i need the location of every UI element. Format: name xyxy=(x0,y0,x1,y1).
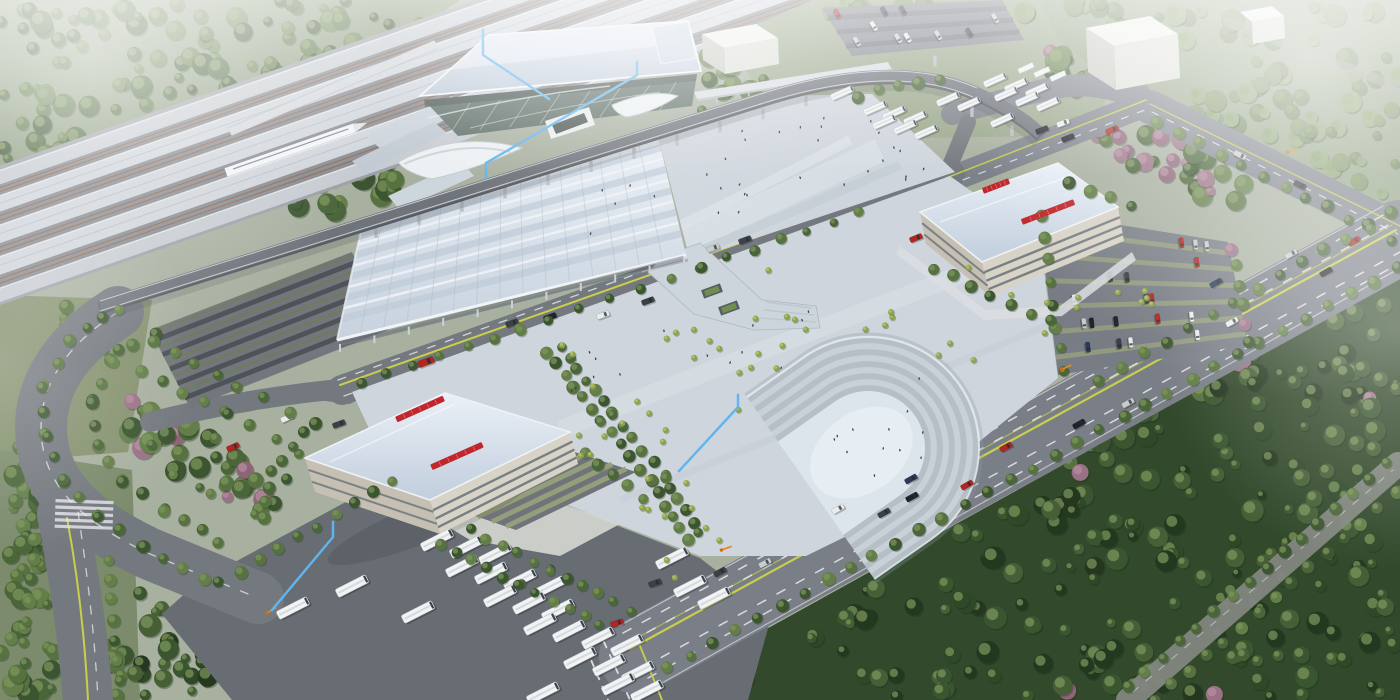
forest-tree xyxy=(1248,584,1264,601)
blossom-tree xyxy=(1224,243,1238,258)
street-tree xyxy=(222,408,234,420)
forest-tree xyxy=(260,63,280,84)
person xyxy=(906,410,908,413)
forest-tree xyxy=(842,10,859,27)
blossom-tree xyxy=(1152,129,1171,148)
person xyxy=(817,139,819,142)
forest-tree xyxy=(387,135,409,157)
person xyxy=(893,146,895,149)
car xyxy=(1177,237,1184,249)
bus xyxy=(401,600,438,626)
forest-tree xyxy=(1375,688,1386,699)
forest-tree xyxy=(1252,420,1273,441)
street-tree xyxy=(1138,347,1150,360)
forest-tree xyxy=(1314,580,1327,594)
forest-tree xyxy=(102,320,125,344)
street-tree xyxy=(661,470,672,481)
forest-tree xyxy=(58,56,72,70)
red-signboard xyxy=(1021,199,1075,225)
forest-tree xyxy=(314,151,335,172)
blossom-tree xyxy=(1048,49,1068,69)
street-tree xyxy=(598,395,610,408)
street-tree xyxy=(464,342,474,352)
forest-tree xyxy=(320,10,342,33)
street-tree xyxy=(1354,518,1368,532)
forest-tree xyxy=(159,640,177,658)
forest-tree xyxy=(728,47,741,60)
forest-tree xyxy=(17,683,39,700)
pillar xyxy=(374,227,377,238)
forest-tree xyxy=(34,485,50,501)
street-tree xyxy=(189,358,200,369)
bus xyxy=(630,679,667,700)
forest-tree xyxy=(1091,535,1103,548)
street-tree xyxy=(616,439,627,451)
street-tree xyxy=(626,607,637,618)
forest-tree xyxy=(1293,469,1312,488)
forest-tree xyxy=(19,82,34,97)
forest-tree xyxy=(67,29,82,44)
street-tree xyxy=(562,573,575,586)
forest-tree xyxy=(741,102,758,120)
bus xyxy=(474,561,511,587)
forest-tree xyxy=(1061,83,1071,94)
forest-tree xyxy=(1167,3,1190,26)
forest-tree xyxy=(264,56,278,71)
forest-tree xyxy=(114,0,137,23)
forest-tree xyxy=(28,491,52,515)
toll-gate xyxy=(264,606,277,615)
street-tree xyxy=(659,501,672,514)
forest-tree xyxy=(1195,569,1214,588)
forest-tree xyxy=(116,670,129,683)
forest-tree xyxy=(1033,654,1054,675)
forest-tree xyxy=(1359,632,1382,655)
forest-tree xyxy=(1264,67,1283,86)
car xyxy=(1284,248,1300,261)
forest-tree xyxy=(208,58,231,81)
forest-tree xyxy=(758,74,770,86)
street-tree xyxy=(1232,348,1244,361)
forest-tree xyxy=(1362,110,1380,129)
car xyxy=(1142,293,1149,305)
forest-tree xyxy=(226,7,248,29)
person xyxy=(874,474,876,477)
car xyxy=(1147,293,1154,305)
person xyxy=(852,428,854,431)
forest-tree xyxy=(1079,398,1099,418)
forest-tree xyxy=(1117,388,1129,401)
plaza-tree xyxy=(971,357,978,364)
forest-tree xyxy=(1186,161,1201,176)
forest-tree xyxy=(418,155,434,171)
forest-tree xyxy=(247,61,259,73)
forest-tree xyxy=(844,604,866,626)
street-tree xyxy=(198,573,212,587)
car xyxy=(1193,330,1200,342)
forest-tree xyxy=(203,662,221,681)
street-tree xyxy=(1149,695,1162,700)
street-tree xyxy=(258,392,270,404)
southwest-road xyxy=(62,514,88,700)
ground-base xyxy=(0,0,1400,700)
forest-tree xyxy=(1072,485,1094,508)
street-tree xyxy=(276,455,289,468)
street-tree xyxy=(853,206,864,218)
street-tree xyxy=(912,523,926,538)
forest-tree xyxy=(160,632,179,652)
forest-tree xyxy=(197,666,219,688)
forest-tree xyxy=(174,73,185,84)
street-tree xyxy=(1301,560,1315,574)
street-tree xyxy=(1035,210,1049,224)
forest-tree xyxy=(1390,159,1400,170)
forest-tree xyxy=(1025,407,1046,428)
pillar xyxy=(589,161,592,172)
person xyxy=(752,324,754,327)
street-tree xyxy=(28,533,42,548)
street-tree xyxy=(137,540,151,554)
person xyxy=(922,431,924,434)
forest-tree xyxy=(38,84,55,101)
forest-tree xyxy=(170,0,186,13)
forest-tree xyxy=(118,78,133,93)
forest-tree xyxy=(146,440,157,452)
bus-shelter xyxy=(1050,70,1067,81)
forest-tree xyxy=(33,16,46,30)
car xyxy=(960,479,976,492)
street-tree xyxy=(309,417,323,431)
forest-tree xyxy=(1108,16,1129,37)
forest-tree xyxy=(350,167,374,191)
plaza-tree xyxy=(1044,300,1051,307)
forest-tree xyxy=(284,0,300,12)
forest-tree xyxy=(1079,657,1096,674)
person xyxy=(899,449,901,452)
short-connector xyxy=(944,122,968,180)
street-tree xyxy=(176,387,189,400)
street-tree xyxy=(594,620,605,631)
street-tree xyxy=(695,264,705,274)
blossom-tree xyxy=(1071,410,1093,432)
person xyxy=(718,211,719,214)
forest-tree xyxy=(1063,455,1079,471)
forest-tree xyxy=(178,420,200,442)
street-tree xyxy=(231,381,243,393)
person xyxy=(629,184,631,187)
street-tree xyxy=(265,466,277,478)
street-tree xyxy=(244,419,257,432)
forest-tree xyxy=(1022,690,1035,700)
street-tree xyxy=(298,426,311,439)
street-tree xyxy=(158,505,172,519)
bus xyxy=(936,91,962,109)
forest-tree xyxy=(1376,188,1389,201)
street-tree xyxy=(498,540,510,552)
forest-tree xyxy=(1362,532,1383,553)
street-tree xyxy=(1045,315,1057,327)
forest-tree xyxy=(1390,382,1400,397)
forest-tree xyxy=(76,627,95,646)
forest-tree xyxy=(1377,589,1389,601)
forest-tree xyxy=(1245,29,1261,45)
forest-tree xyxy=(1087,427,1105,446)
street-tree xyxy=(1228,590,1240,602)
street-tree xyxy=(682,534,696,548)
forest-tree xyxy=(98,28,111,41)
annotation-callout-line xyxy=(483,30,549,99)
forest-tree xyxy=(1054,65,1072,83)
forest-tree xyxy=(1224,112,1240,129)
colonnade-shadow xyxy=(340,258,684,345)
pillar xyxy=(503,187,506,198)
forest-tree xyxy=(1364,1,1386,23)
forest-tree xyxy=(317,193,338,215)
forest-tree xyxy=(232,480,252,500)
person xyxy=(741,130,743,133)
forest-tree xyxy=(1336,364,1355,383)
street-tree xyxy=(1252,283,1266,297)
street-tree xyxy=(97,312,110,325)
plaza-tree xyxy=(672,575,679,582)
forest-tree xyxy=(849,0,871,21)
forest-tree xyxy=(16,674,33,691)
forest-tree xyxy=(26,442,50,466)
forest-tree xyxy=(268,60,281,74)
street-tree xyxy=(636,284,648,296)
forest-tree xyxy=(366,140,385,160)
street-tree xyxy=(1392,261,1400,274)
street-tree xyxy=(566,381,581,396)
person xyxy=(614,202,615,205)
forest-tree xyxy=(139,432,162,456)
bus xyxy=(673,574,710,600)
plaza-tree xyxy=(792,317,799,324)
street-tree xyxy=(545,567,555,578)
toll-gate xyxy=(1059,363,1072,371)
plaza-tree xyxy=(691,327,698,334)
bus xyxy=(512,591,549,617)
street-tree xyxy=(1363,473,1376,486)
forest-tree xyxy=(181,47,201,68)
train-nose xyxy=(353,123,367,132)
street-tree xyxy=(580,447,592,459)
street-tree xyxy=(292,531,304,543)
street-tree xyxy=(592,459,606,473)
forest-tree xyxy=(189,456,212,480)
forest-tree xyxy=(1326,554,1338,566)
forest-tree xyxy=(1061,0,1085,13)
forest-tree xyxy=(18,622,32,636)
forest-tree xyxy=(233,476,256,499)
car xyxy=(831,503,847,516)
blossom-tree xyxy=(1017,429,1036,449)
forest-tree xyxy=(141,402,162,423)
forest-tree xyxy=(63,634,80,652)
forest-tree xyxy=(1154,12,1164,23)
pedestrians xyxy=(571,117,925,477)
street-tree xyxy=(1050,449,1064,463)
street-tree xyxy=(312,523,323,534)
forest-tree xyxy=(68,15,80,27)
person xyxy=(823,117,824,120)
forest-tree xyxy=(1052,408,1071,427)
street-tree xyxy=(595,415,606,427)
forest-tree xyxy=(986,668,1002,684)
street-tree xyxy=(565,353,577,365)
forest-tree xyxy=(1003,563,1024,584)
forest-tree xyxy=(41,540,65,564)
street-tree xyxy=(452,547,464,559)
street-tree xyxy=(1230,259,1243,272)
street-tree xyxy=(135,365,149,379)
forest-tree xyxy=(1075,71,1094,90)
forest-tree xyxy=(195,483,205,494)
plaza-tree xyxy=(773,365,780,372)
forest-tree xyxy=(944,646,962,665)
street-tree xyxy=(1386,236,1398,248)
forest-tree xyxy=(137,667,149,680)
glass-curtain-wall xyxy=(424,74,697,136)
forest-tree xyxy=(1386,637,1400,654)
forest-tree xyxy=(1183,142,1206,166)
forest-tree xyxy=(24,9,36,22)
forest-tree xyxy=(998,452,1010,464)
plaza-tree xyxy=(966,265,973,272)
street-tree xyxy=(27,553,41,567)
street-tree xyxy=(693,528,704,539)
forest-tree xyxy=(1116,381,1130,395)
forest-tree xyxy=(1357,631,1379,653)
forest-tree xyxy=(1073,544,1085,556)
annotation-callout-line xyxy=(486,62,637,178)
forest-tree xyxy=(1224,114,1247,137)
forest-tree xyxy=(16,481,34,500)
forest-tree xyxy=(87,661,106,680)
forest-tree xyxy=(50,141,71,163)
street-tree xyxy=(574,304,585,315)
forest-tree xyxy=(1281,537,1293,549)
forest-tree xyxy=(210,433,223,446)
forest-tree xyxy=(151,607,161,618)
street-tree xyxy=(1340,233,1352,245)
forest-tree xyxy=(110,689,125,700)
forest-tree xyxy=(1252,655,1264,668)
car xyxy=(738,235,754,247)
forest-tree xyxy=(1273,650,1285,662)
street-tree xyxy=(1270,591,1283,604)
forest-tree xyxy=(1107,70,1127,90)
street-tree xyxy=(1278,545,1292,560)
street-tree xyxy=(1329,502,1343,516)
street-tree xyxy=(608,410,619,421)
street-tree xyxy=(1233,280,1246,293)
forest-tree xyxy=(845,619,856,630)
forest-tree xyxy=(112,78,127,93)
forest-tree xyxy=(32,84,43,95)
forest-tree xyxy=(1102,114,1119,131)
forest-tree xyxy=(932,1,954,23)
street-tree xyxy=(20,658,32,671)
bus xyxy=(541,598,578,624)
street-tree xyxy=(1367,276,1382,291)
forest-tree xyxy=(1173,472,1192,491)
bus xyxy=(523,612,560,638)
car xyxy=(1347,235,1363,248)
forest-tree xyxy=(17,22,30,35)
forest-tree xyxy=(58,104,70,116)
plaza-tree xyxy=(660,439,667,446)
street-tree xyxy=(580,610,592,622)
forest-tree xyxy=(270,66,291,87)
forest-tree xyxy=(241,461,253,473)
street-tree xyxy=(596,417,607,429)
forest-tree xyxy=(1046,514,1069,537)
car xyxy=(1080,318,1087,330)
forest-tree xyxy=(1195,370,1209,384)
forest-tree xyxy=(1330,120,1348,139)
blossom-tree xyxy=(1088,115,1111,139)
forest-tree xyxy=(61,599,84,622)
forest-tree xyxy=(837,609,855,628)
forest-tree xyxy=(1381,52,1393,64)
ancillary-buildings xyxy=(702,6,1285,90)
forest-tree xyxy=(1296,688,1310,700)
street-tree xyxy=(113,523,126,536)
street-tree xyxy=(497,572,510,585)
street-tree xyxy=(722,252,732,263)
street-tree xyxy=(91,509,105,523)
forest-tree xyxy=(1340,529,1352,541)
forest-tree xyxy=(103,649,127,673)
car xyxy=(902,32,913,45)
street-tree xyxy=(102,455,115,468)
plaza-tree xyxy=(703,525,710,532)
forest-tree xyxy=(33,115,53,136)
left-garage-roof xyxy=(305,393,570,500)
forest-tree xyxy=(1350,173,1368,191)
street-tree xyxy=(96,378,108,391)
street-tree xyxy=(1300,193,1312,205)
street-tree xyxy=(52,358,65,371)
forest-tree xyxy=(91,339,105,353)
forest-tree xyxy=(110,643,128,661)
car xyxy=(1209,277,1225,290)
plaza-tree xyxy=(882,322,889,329)
forest-tree xyxy=(52,94,76,118)
car xyxy=(1123,272,1130,284)
forest-tree xyxy=(1059,624,1072,637)
street-tree xyxy=(104,574,118,588)
street-tree xyxy=(557,342,568,353)
top-parking-lot xyxy=(822,0,1024,56)
forest-tree xyxy=(1145,407,1160,423)
pillar xyxy=(933,56,936,67)
person xyxy=(780,366,782,369)
street-tree xyxy=(589,384,602,398)
forest-tree xyxy=(1088,573,1100,586)
forest-tree xyxy=(1080,644,1092,657)
forest-tree xyxy=(206,489,217,501)
forest-tree xyxy=(837,645,850,658)
forest-tree xyxy=(406,144,429,167)
forest-tree xyxy=(891,690,904,700)
bus xyxy=(503,568,540,594)
street-tree xyxy=(114,305,125,317)
street-tree xyxy=(1173,127,1186,141)
plaza-tree xyxy=(707,338,714,345)
forest-tree xyxy=(1348,565,1370,588)
